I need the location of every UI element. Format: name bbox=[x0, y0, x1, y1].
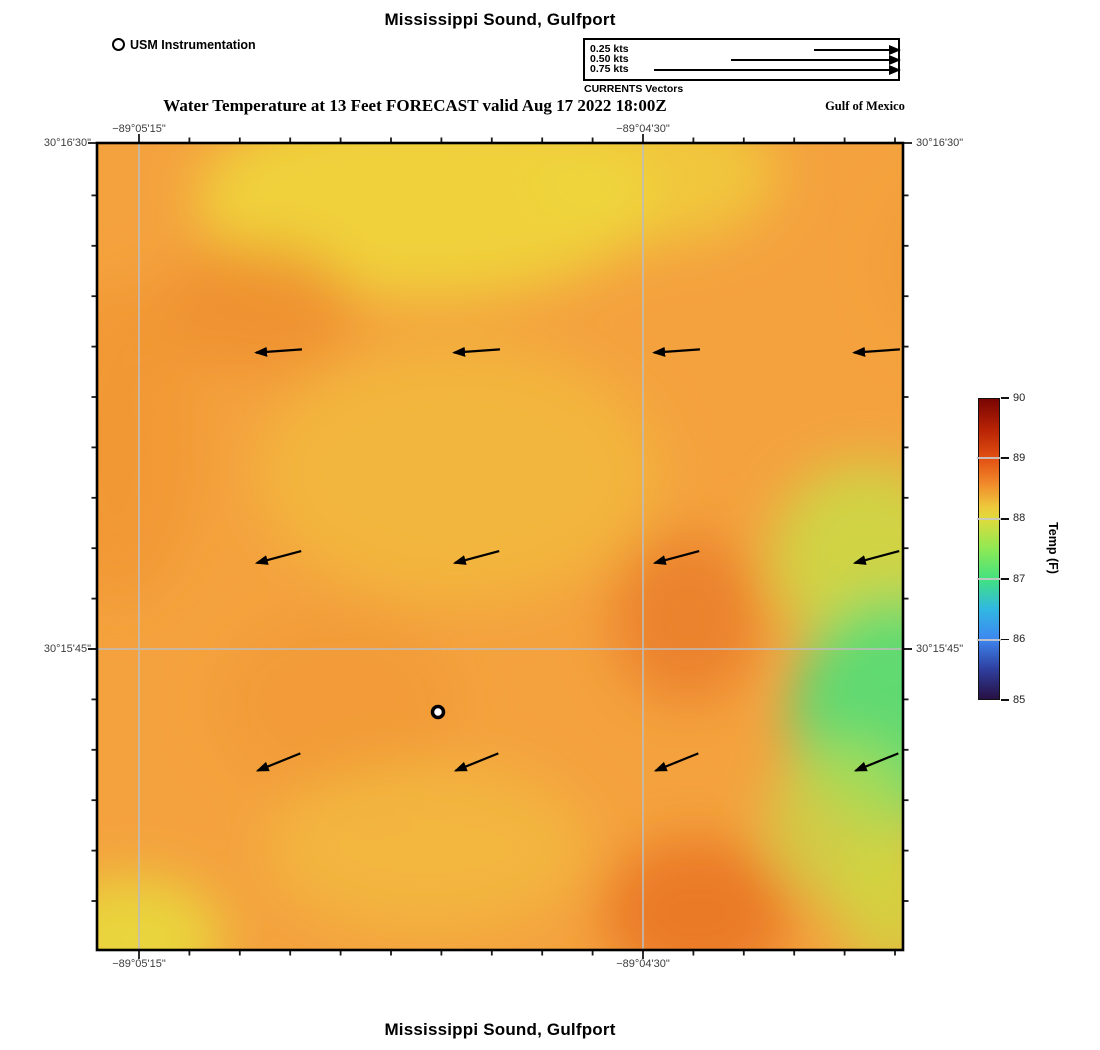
station-marker-icon bbox=[112, 38, 125, 51]
colorbar-tick bbox=[1001, 518, 1009, 520]
axis-label-lat: 30°16'30" bbox=[6, 137, 91, 149]
colorbar-tick-label: 88 bbox=[1013, 512, 1043, 524]
temperature-map bbox=[85, 131, 915, 962]
region-label: Gulf of Mexico bbox=[790, 99, 940, 114]
colorbar-gridline bbox=[977, 578, 1001, 580]
vector-legend-arrow bbox=[814, 49, 890, 51]
colorbar-tick-label: 85 bbox=[1013, 694, 1043, 706]
colorbar-gridline bbox=[977, 639, 1001, 641]
figure-subtitle: Water Temperature at 13 Feet FORECAST va… bbox=[95, 96, 735, 116]
colorbar-tick bbox=[1001, 578, 1009, 580]
current-vector-legend: 0.25 kts 0.50 kts 0.75 kts bbox=[583, 38, 900, 81]
instrument-legend-label: USM Instrumentation bbox=[130, 38, 256, 52]
colorbar-tick bbox=[1001, 699, 1009, 701]
colorbar bbox=[978, 398, 1000, 700]
figure-footer-title: Mississippi Sound, Gulfport bbox=[95, 1020, 905, 1040]
axis-label-lat: 30°16'30" bbox=[916, 137, 1001, 149]
colorbar-gridline bbox=[977, 518, 1001, 520]
vector-legend-caption: CURRENTS Vectors bbox=[584, 83, 683, 95]
temperature-blob bbox=[612, 533, 762, 703]
instrument-legend: USM Instrumentation bbox=[112, 37, 256, 52]
vector-legend-arrow bbox=[731, 59, 890, 61]
vector-legend-arrow bbox=[654, 69, 890, 71]
figure: Mississippi Sound, Gulfport USM Instrume… bbox=[0, 0, 1100, 1050]
figure-title: Mississippi Sound, Gulfport bbox=[95, 10, 905, 30]
colorbar-tick bbox=[1001, 397, 1009, 399]
colorbar-tick-label: 90 bbox=[1013, 392, 1043, 404]
temperature-blob bbox=[267, 763, 587, 933]
colorbar-tick-label: 87 bbox=[1013, 573, 1043, 585]
vector-legend-label: 0.75 kts bbox=[590, 64, 629, 74]
colorbar-tick-label: 89 bbox=[1013, 452, 1043, 464]
colorbar-tick-label: 86 bbox=[1013, 633, 1043, 645]
colorbar-gridline bbox=[977, 457, 1001, 459]
station-marker bbox=[433, 707, 444, 718]
colorbar-tick bbox=[1001, 639, 1009, 641]
colorbar-title: Temp (F) bbox=[1046, 513, 1060, 583]
temperature-blob bbox=[257, 343, 657, 603]
colorbar-tick bbox=[1001, 457, 1009, 459]
axis-label-lat: 30°15'45" bbox=[6, 643, 91, 655]
